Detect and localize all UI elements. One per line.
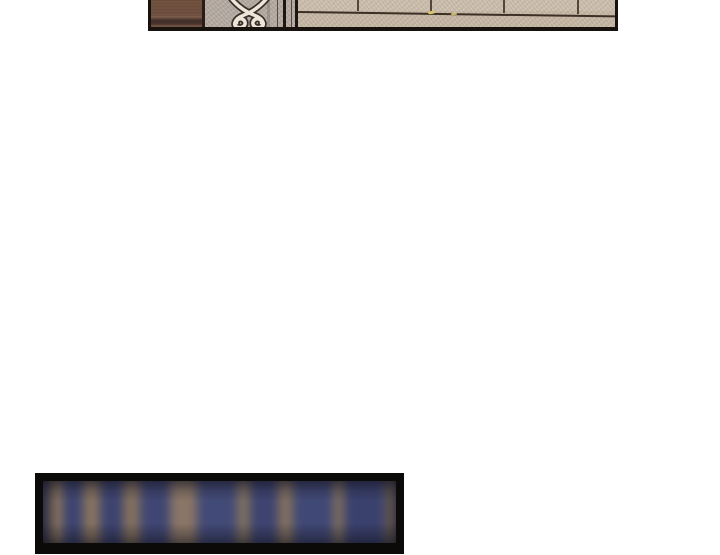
gate-bar [277,0,278,27]
wall-joint-line [503,0,505,13]
comic-panel-bottom [35,473,404,554]
wood-post [151,0,205,27]
gate-bar [283,0,286,27]
panel-top-artwork [151,0,615,27]
blurred-fence-photo [43,481,396,543]
photo-vignette [43,481,396,543]
wall-joint-line [357,0,359,11]
comic-panel-top [148,0,618,31]
wall-joint-line [577,0,579,14]
comic-reader-page [0,0,720,555]
gate-bar [291,0,292,27]
iron-scroll-ornament-icon [220,0,278,28]
